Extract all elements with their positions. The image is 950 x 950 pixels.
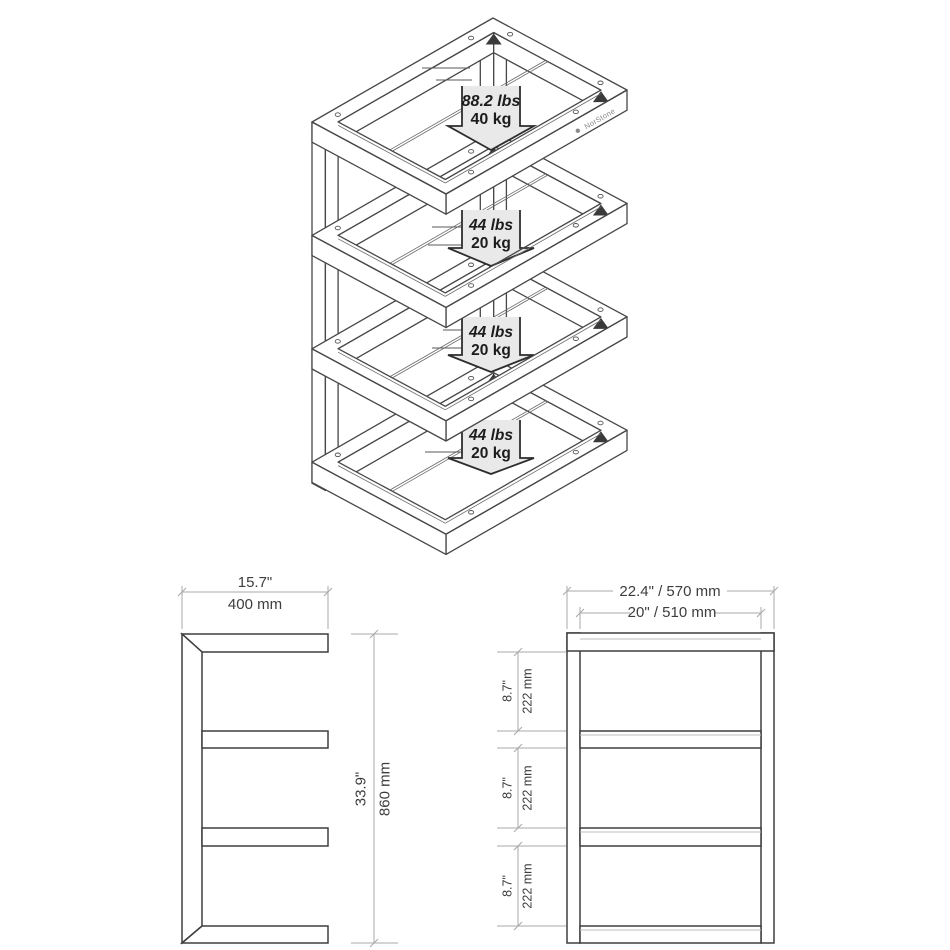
- front-bottom-shelf: [580, 926, 761, 943]
- screw-icon: [469, 150, 474, 154]
- weight-lbs-label: 44 lbs: [468, 217, 513, 234]
- front-shelf-3: [580, 828, 761, 846]
- screw-icon: [598, 194, 603, 198]
- front-inner-width: 20" / 510 mm: [628, 604, 717, 621]
- gap-2-inches: 8.7": [500, 777, 514, 799]
- gap-3-inches: 8.7": [500, 875, 514, 897]
- isometric-view: 44 lbs20 kg44 lbs20 kg44 lbs20 kg88.2 lb…: [312, 18, 627, 554]
- side-height-mm: 860 mm: [376, 762, 393, 816]
- weight-kg-label: 20 kg: [471, 235, 511, 252]
- screw-icon: [469, 397, 474, 401]
- weight-kg-label: 20 kg: [471, 445, 511, 462]
- screw-icon: [469, 284, 474, 288]
- screw-icon: [335, 226, 340, 230]
- gap-1-mm: 222 mm: [520, 668, 534, 713]
- front-view: 22.4" / 570 mm 20" / 510 mm 8.7" 222 mm …: [497, 583, 778, 943]
- weight-lbs-label: 44 lbs: [468, 324, 513, 341]
- screw-icon: [573, 337, 578, 341]
- screw-icon: [573, 110, 578, 114]
- side-top-shelf: [182, 634, 328, 652]
- screw-icon: [469, 36, 474, 40]
- front-glass-lines: [580, 639, 761, 930]
- side-shelf-3: [202, 828, 328, 846]
- screw-icon: [573, 450, 578, 454]
- side-shelf-2: [202, 731, 328, 748]
- front-shelf-2: [580, 731, 761, 748]
- weight-kg-label: 40 kg: [471, 111, 512, 128]
- rear-post-face: [312, 122, 325, 490]
- side-spine: [182, 634, 202, 943]
- front-top-shelf: [567, 633, 774, 651]
- rack-diagram: 44 lbs20 kg44 lbs20 kg44 lbs20 kg88.2 lb…: [0, 0, 950, 950]
- front-outer-width: 22.4" / 570 mm: [619, 583, 720, 600]
- screw-icon: [598, 308, 603, 312]
- screw-icon: [335, 453, 340, 457]
- side-width-mm: 400 mm: [228, 596, 282, 613]
- screw-icon: [598, 421, 603, 425]
- gap-1-inches: 8.7": [500, 680, 514, 702]
- screw-icon: [573, 224, 578, 228]
- screw-icon: [335, 113, 340, 117]
- front-right-post: [761, 633, 774, 943]
- screw-icon: [469, 263, 474, 267]
- screw-icon: [598, 81, 603, 85]
- weight-lbs-label: 44 lbs: [468, 427, 513, 444]
- side-bottom-shelf: [182, 926, 328, 943]
- screw-icon: [335, 340, 340, 344]
- screw-icon: [469, 511, 474, 515]
- gap-2-mm: 222 mm: [520, 765, 534, 810]
- weight-kg-label: 20 kg: [471, 342, 511, 359]
- side-height-inches: 33.9": [352, 772, 369, 807]
- side-view: 15.7" 400 mm 33.9" 860 mm: [178, 574, 398, 947]
- rear-post-face: [325, 122, 338, 491]
- diagram-page: 44 lbs20 kg44 lbs20 kg44 lbs20 kg88.2 lb…: [0, 0, 950, 950]
- screw-icon: [469, 376, 474, 380]
- side-width-inches: 15.7": [238, 574, 273, 591]
- front-left-post: [567, 633, 580, 943]
- shelf-front-left-face: [312, 462, 446, 554]
- screw-icon: [508, 32, 513, 36]
- gap-3-mm: 222 mm: [520, 863, 534, 908]
- screw-icon: [469, 170, 474, 174]
- weight-lbs-label: 88.2 lbs: [462, 93, 521, 110]
